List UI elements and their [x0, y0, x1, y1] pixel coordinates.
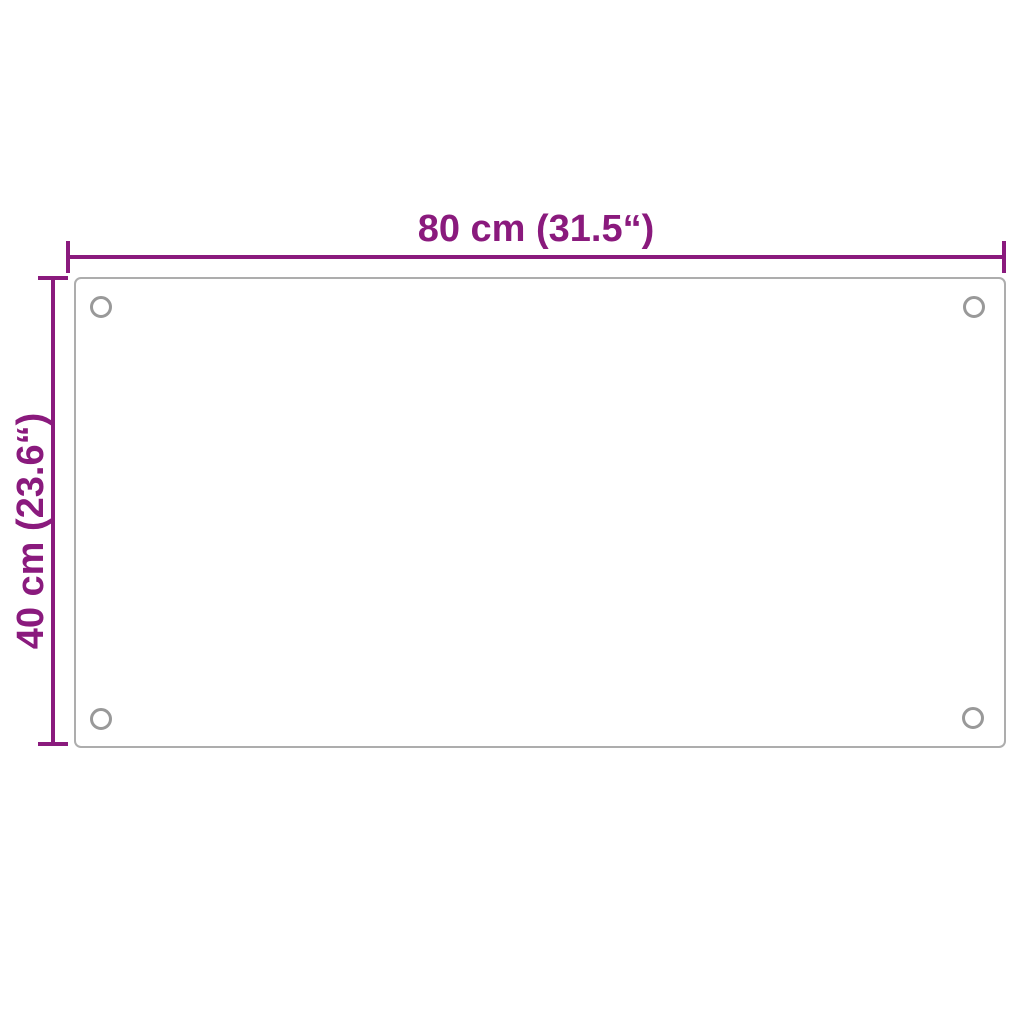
height-dimension-tick-bottom	[38, 742, 68, 746]
mounting-hole-top-right	[963, 296, 985, 318]
width-dimension-line	[66, 241, 1006, 273]
product-dimension-diagram: 80 cm (31.5“) 40 cm (23.6“)	[0, 0, 1024, 1024]
mounting-hole-bottom-right	[962, 707, 984, 729]
width-dimension-tick-right	[1002, 241, 1006, 273]
height-dimension-rule	[51, 276, 55, 746]
height-dimension-line	[38, 276, 68, 746]
mounting-hole-bottom-left	[90, 708, 112, 730]
width-dimension-rule	[66, 255, 1006, 259]
mounting-hole-top-left	[90, 296, 112, 318]
glass-panel	[74, 277, 1006, 748]
